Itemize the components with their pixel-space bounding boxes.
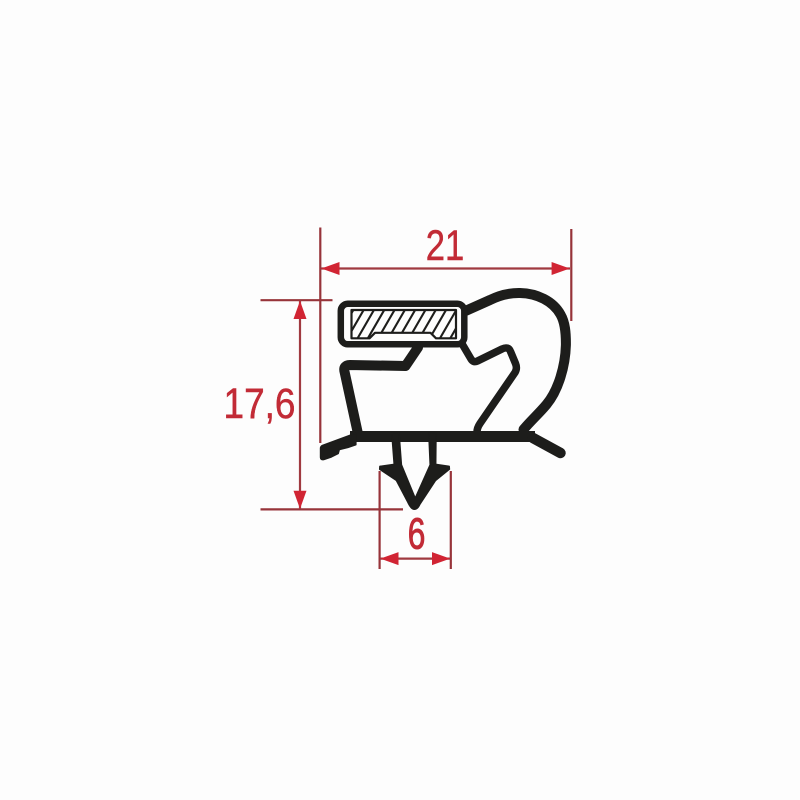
svg-text:6: 6 (408, 509, 426, 558)
svg-text:17,6: 17,6 (224, 380, 296, 428)
svg-text:21: 21 (426, 222, 465, 270)
